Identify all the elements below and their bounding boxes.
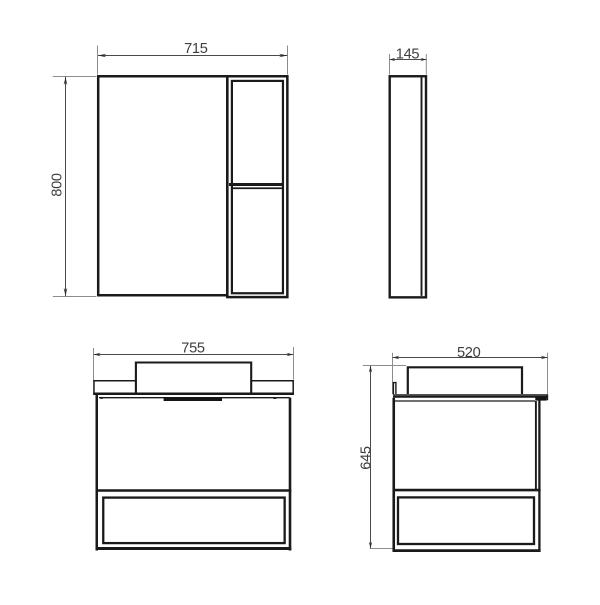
- svg-text:715: 715: [184, 41, 208, 57]
- svg-text:520: 520: [457, 345, 481, 361]
- svg-text:645: 645: [358, 446, 374, 470]
- svg-text:755: 755: [181, 340, 205, 356]
- svg-text:145: 145: [396, 47, 420, 63]
- svg-text:800: 800: [49, 173, 65, 197]
